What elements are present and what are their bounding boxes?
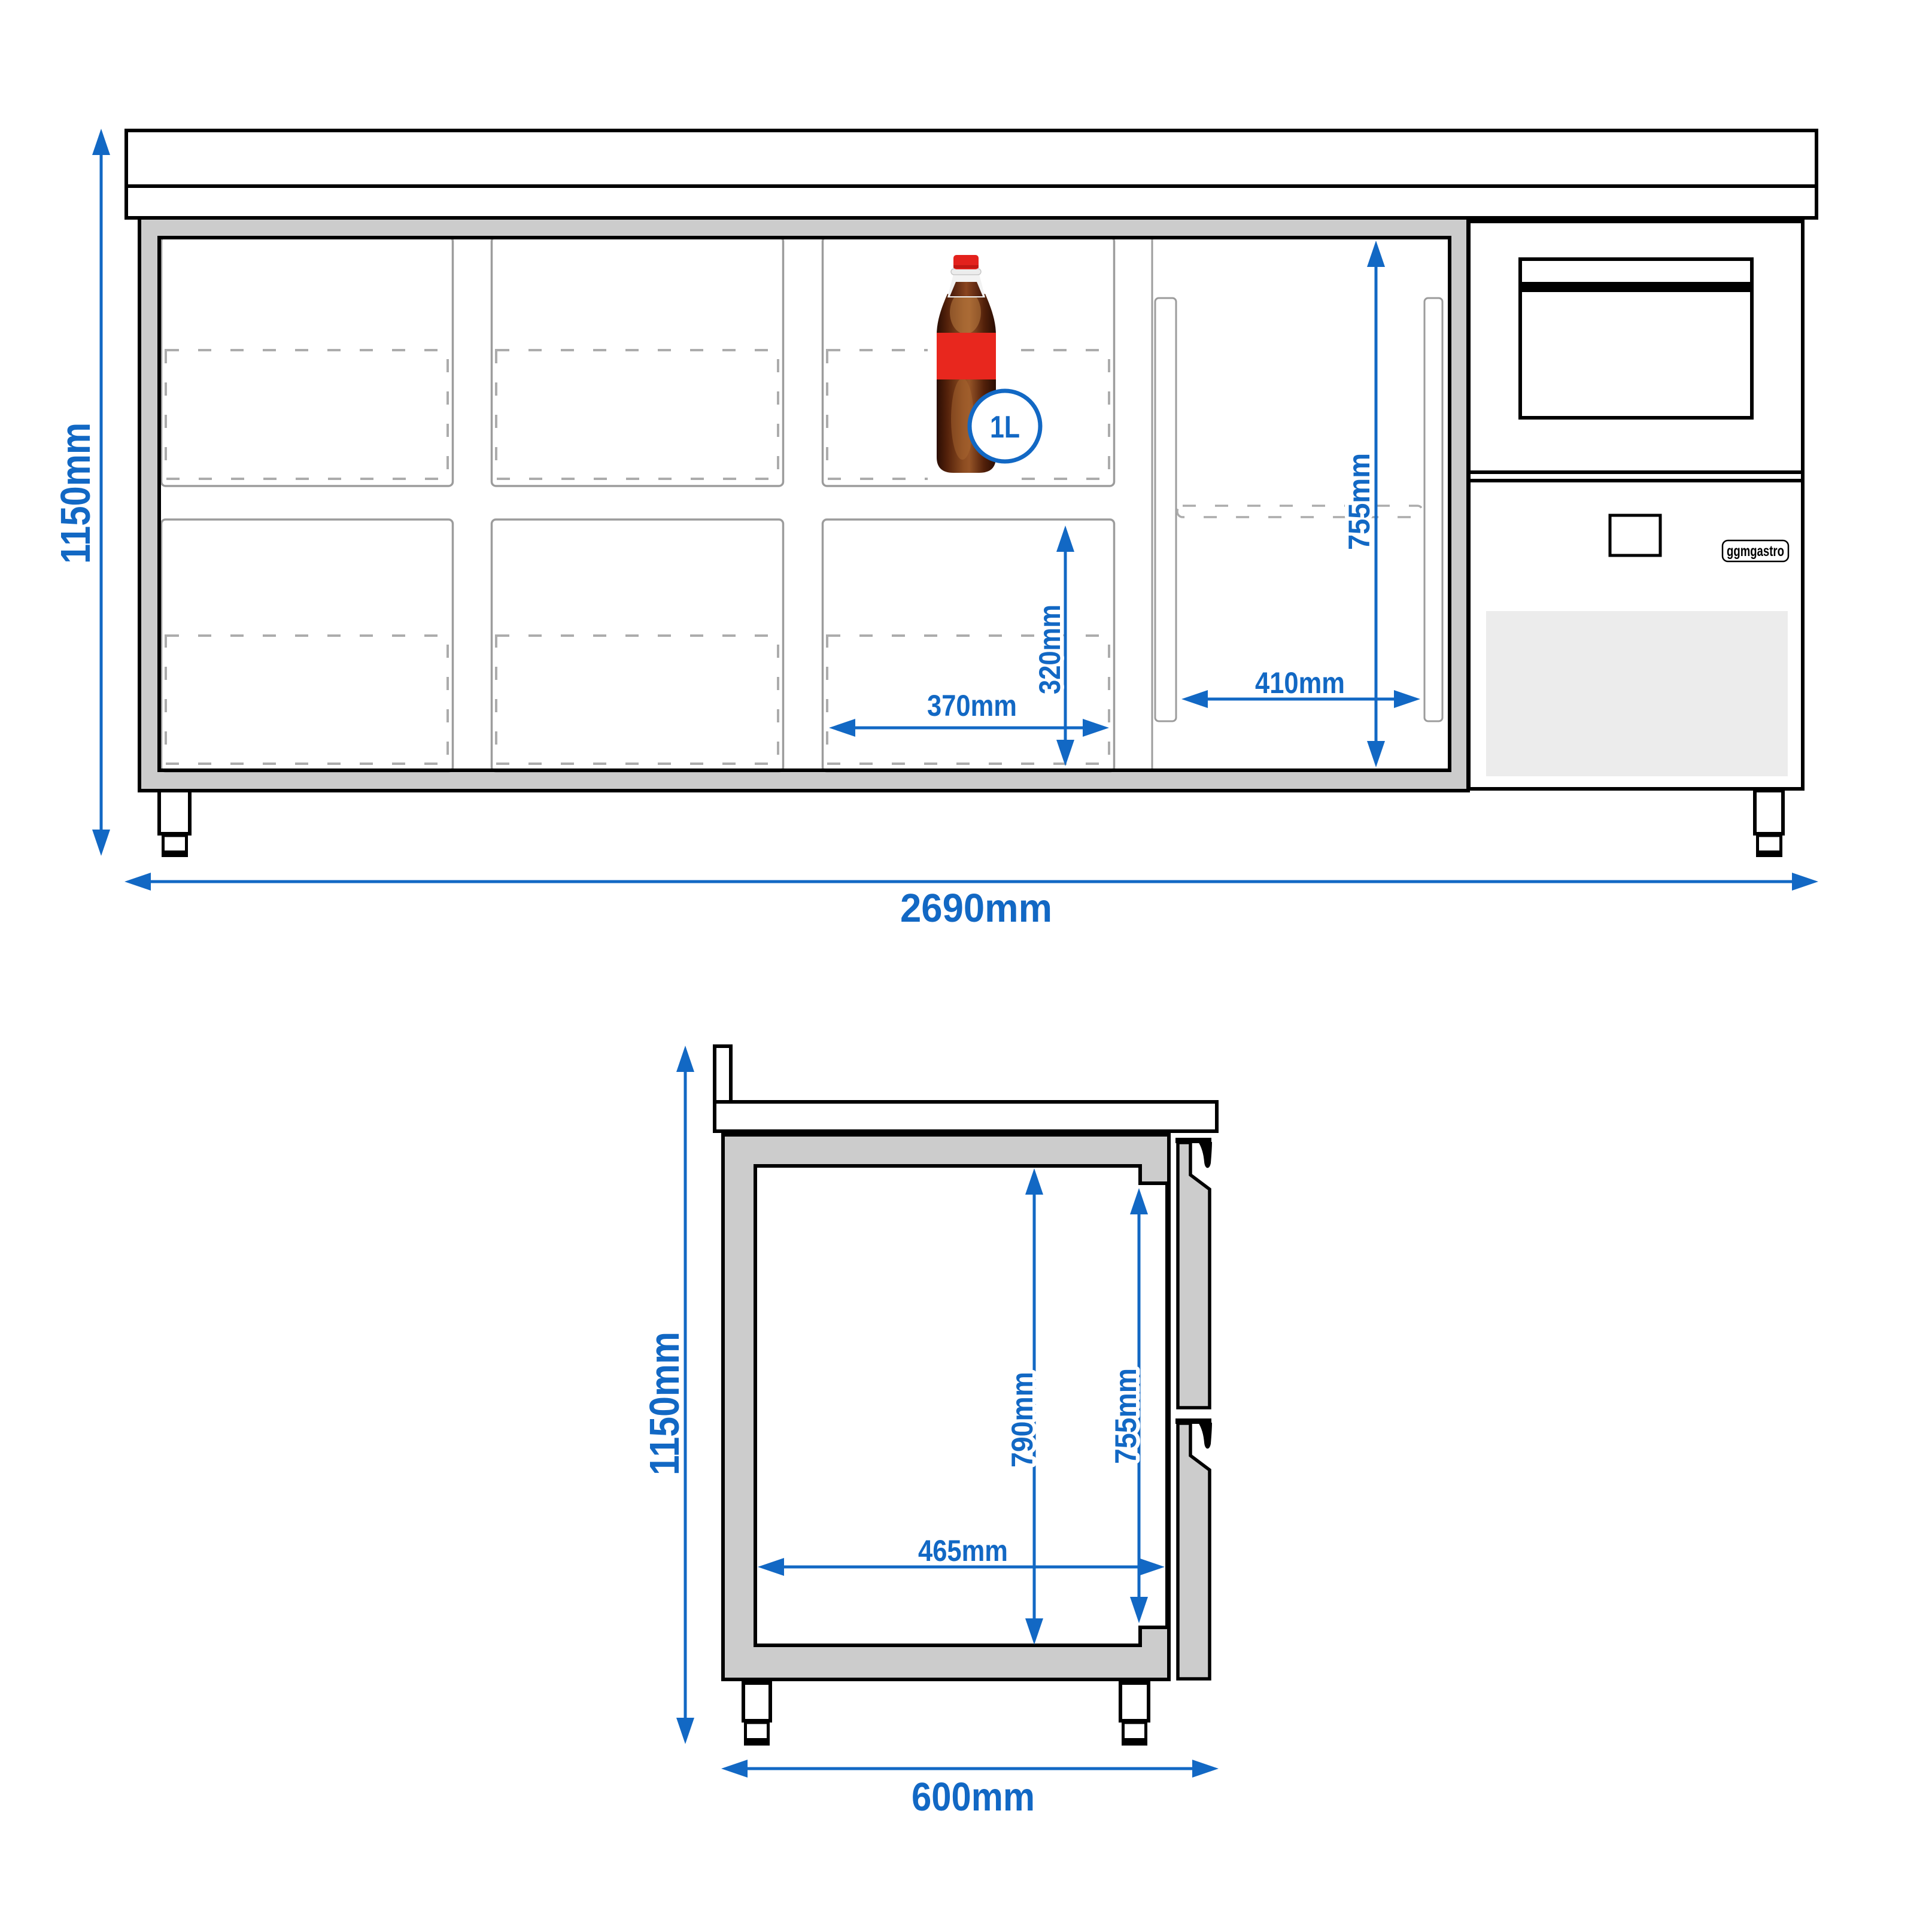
svg-text:1150mm: 1150mm [52,423,99,564]
svg-text:600mm: 600mm [912,1775,1035,1819]
svg-text:2690mm: 2690mm [900,886,1052,931]
svg-text:1L: 1L [990,410,1020,445]
svg-text:ggmgastro: ggmgastro [1727,543,1784,560]
svg-text:410mm: 410mm [1255,666,1345,700]
svg-text:370mm: 370mm [927,689,1017,722]
svg-text:1150mm: 1150mm [641,1332,688,1475]
svg-text:320mm: 320mm [1033,604,1067,694]
svg-text:755mm: 755mm [1342,453,1376,550]
svg-text:755mm: 755mm [1109,1368,1143,1464]
svg-text:465mm: 465mm [918,1534,1008,1568]
svg-text:790mm: 790mm [1006,1372,1039,1468]
